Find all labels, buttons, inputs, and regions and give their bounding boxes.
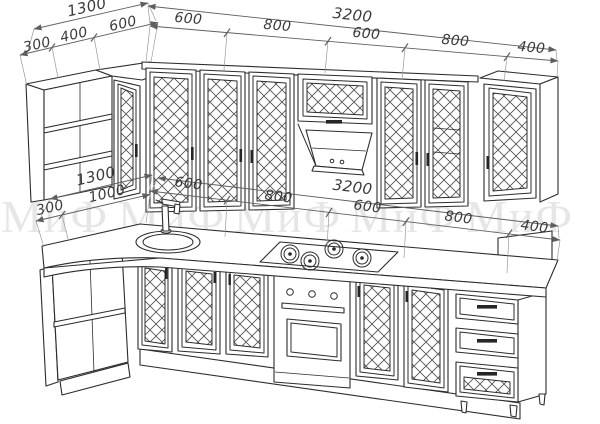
- kitchen-technical-drawing: МиФ МиФ МиФ МиФ МиФ: [0, 0, 600, 424]
- door-handle: [487, 156, 490, 169]
- upper-end-cabinet-400: [480, 71, 558, 202]
- base-door: [356, 276, 398, 380]
- extension-line: [20, 55, 27, 86]
- adjustable-foot: [461, 401, 467, 413]
- extension-line: [557, 61, 558, 77]
- hob-burner: [353, 249, 371, 267]
- door-lattice-panel: [145, 268, 165, 344]
- over-hood-cabinet: [298, 74, 372, 124]
- door-lattice-panel: [234, 275, 260, 348]
- drawer-handle: [477, 372, 497, 376]
- extension-line: [557, 240, 560, 261]
- hob-burner: [325, 240, 343, 258]
- dim-label: 600: [108, 13, 139, 35]
- adjustable-foot: [510, 405, 517, 417]
- door-handle: [358, 286, 360, 297]
- drawer-handle: [477, 305, 497, 309]
- burner-cap: [308, 259, 312, 263]
- base-door: [404, 281, 448, 392]
- drawer-handle: [477, 339, 497, 343]
- hob-burner: [301, 252, 319, 270]
- adjustable-foot: [539, 394, 545, 405]
- dim-label: 300: [22, 34, 53, 56]
- door-handle: [326, 120, 342, 124]
- extension-line: [148, 6, 150, 24]
- hood-canopy: [306, 130, 372, 170]
- dim-label: 600: [352, 25, 381, 43]
- upper-door: [377, 78, 421, 208]
- dim-label: 800: [264, 187, 294, 206]
- extension-line: [52, 47, 58, 78]
- door-lattice-panel: [412, 290, 440, 383]
- dim-label: 400: [59, 24, 90, 46]
- extension-line: [146, 26, 150, 62]
- door-glass-lattice: [433, 89, 460, 198]
- extension-line: [556, 50, 557, 60]
- faucet-column: [162, 206, 169, 231]
- unit-side-panel: [518, 292, 546, 402]
- dim-label: 400: [517, 39, 546, 57]
- door-handle: [191, 147, 194, 160]
- door-glass-lattice: [208, 79, 237, 202]
- cabinet-side-panel: [540, 77, 558, 202]
- drawing-canvas: МиФ МиФ МиФ МиФ МиФ: [0, 0, 600, 424]
- base-door: [226, 266, 268, 357]
- extension-line: [94, 37, 100, 70]
- door-handle: [416, 152, 419, 165]
- dim-label: 800: [263, 17, 292, 35]
- dim-label: 600: [353, 197, 383, 216]
- door-handle: [135, 144, 138, 157]
- door-handle: [240, 149, 243, 162]
- burner-cap: [360, 256, 364, 260]
- upper-door: [425, 80, 468, 207]
- burner-cap: [332, 247, 336, 251]
- door-lattice-panel: [186, 271, 212, 345]
- upper-door: [200, 70, 245, 211]
- base-door: [178, 262, 220, 354]
- oven: [274, 272, 350, 388]
- door-glass-lattice: [493, 93, 527, 191]
- base-door: [138, 260, 172, 352]
- dim-label: 800: [441, 32, 470, 50]
- hob-burner: [281, 245, 299, 263]
- faucet-spout-tip: [174, 204, 180, 214]
- door-handle: [229, 274, 231, 285]
- dim-label: 3200: [332, 4, 373, 26]
- door-glass-lattice: [257, 81, 286, 201]
- door-glass-lattice: [385, 87, 413, 199]
- range-hood: [298, 124, 372, 175]
- extension-line: [224, 33, 227, 70]
- door-glass-lattice: [121, 88, 133, 190]
- dim-label: 800: [444, 208, 474, 227]
- extension-line: [151, 22, 158, 62]
- door-glass-lattice: [307, 83, 363, 115]
- door-handle: [165, 268, 167, 279]
- dim-label: 600: [174, 10, 203, 28]
- door-handle: [406, 291, 408, 302]
- door-handle: [214, 272, 216, 283]
- dim-label: 400: [520, 217, 550, 236]
- burner-cap: [288, 252, 292, 256]
- shelf-side-panel: [26, 84, 44, 202]
- door-lattice-panel: [364, 285, 390, 371]
- door-handle: [251, 150, 254, 163]
- door-handle: [427, 153, 430, 166]
- dim-label: 600: [174, 174, 204, 193]
